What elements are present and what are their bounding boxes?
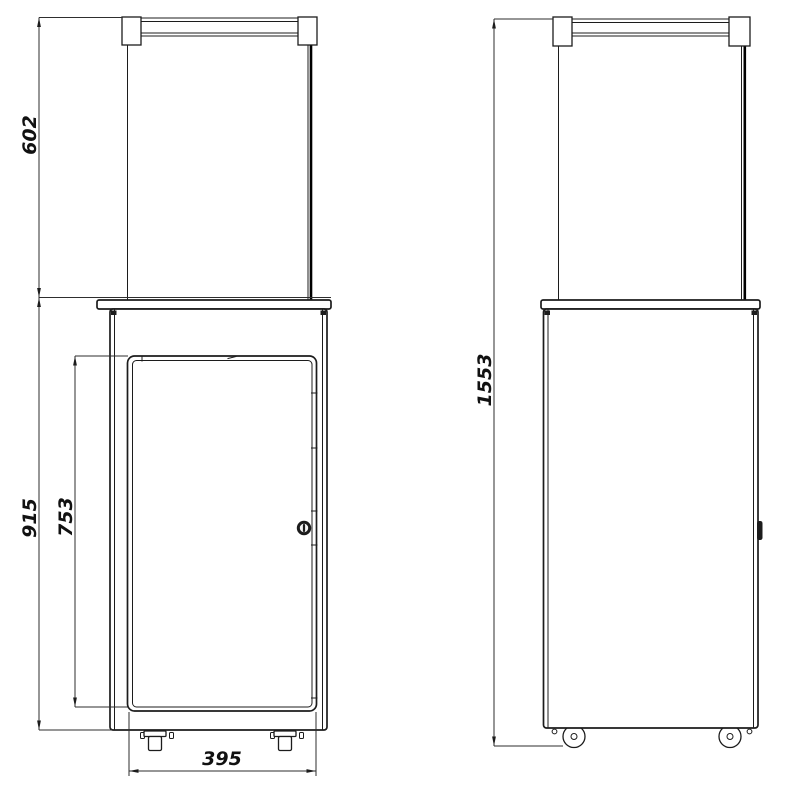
technical-drawing-canvas: 602 915 753 395: [0, 0, 800, 800]
side-top-rail: [572, 19, 729, 36]
front-door-panel: [128, 356, 318, 711]
front-glass-panel: [128, 45, 312, 301]
dimension-label-915: 915: [19, 498, 41, 538]
front-top-rail: [141, 18, 298, 36]
dimension-glass-height: 602: [19, 18, 122, 298]
side-glass-panel: [559, 46, 745, 301]
side-view: 1553: [474, 17, 763, 748]
side-lock-knob-icon: [757, 521, 763, 540]
front-top-lid: [97, 300, 331, 309]
side-body-shell: [544, 309, 759, 728]
side-top-lid: [541, 300, 760, 309]
dimension-label-753: 753: [55, 497, 77, 537]
front-caster-left: [141, 731, 174, 751]
dimension-label-602: 602: [19, 115, 41, 155]
technical-drawing-page: 602 915 753 395: [0, 0, 800, 800]
front-caster-right: [271, 731, 304, 751]
keyhole-lock-icon: [297, 521, 311, 535]
front-view: 602 915 753 395: [19, 17, 331, 776]
dimension-label-1553: 1553: [474, 354, 496, 407]
dimension-label-395: 395: [202, 748, 242, 770]
